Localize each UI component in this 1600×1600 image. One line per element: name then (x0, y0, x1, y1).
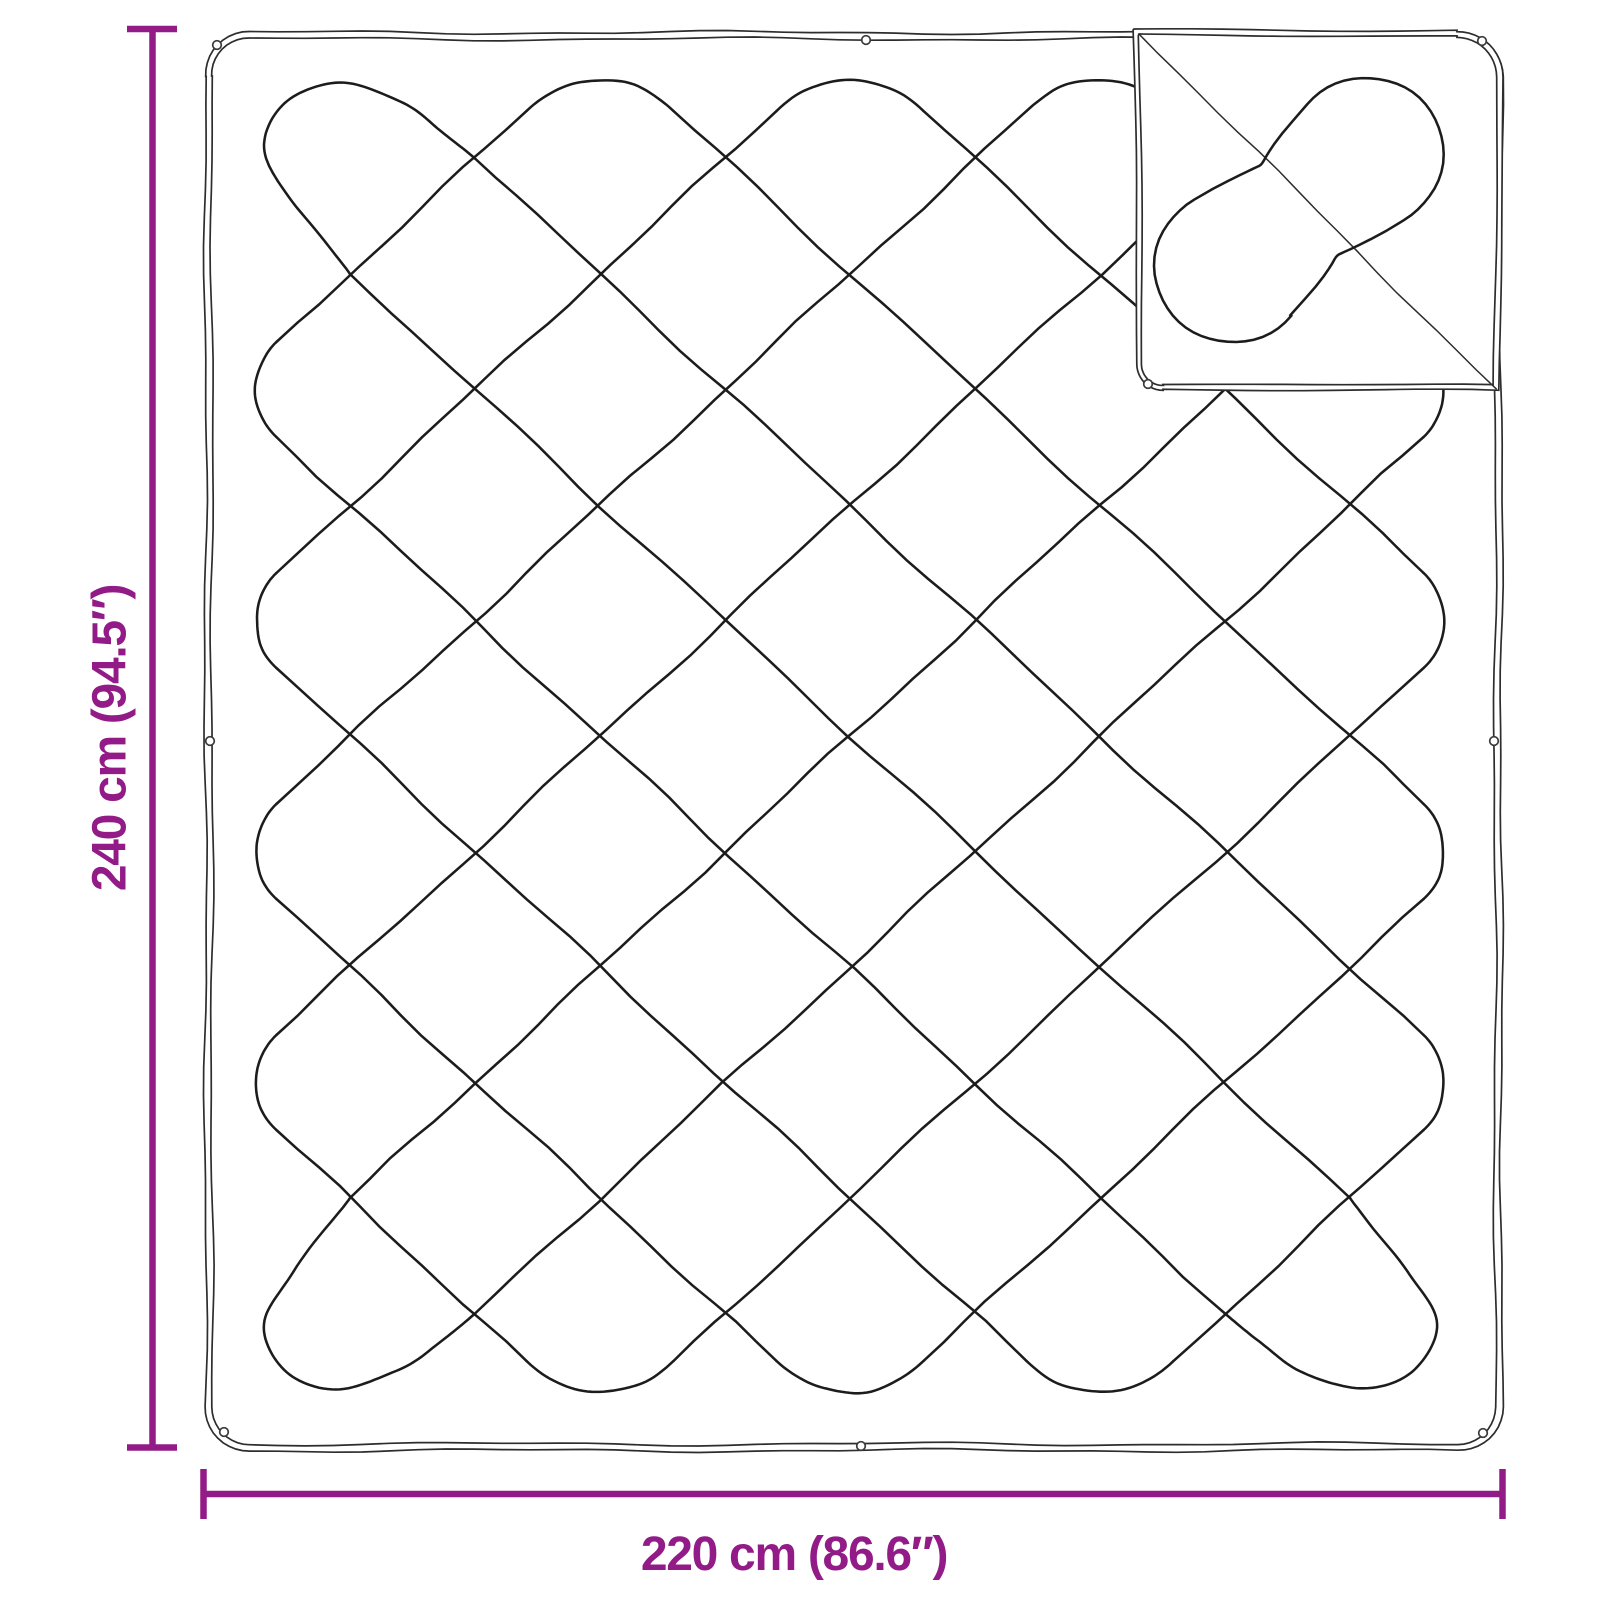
svg-text:240 cm (94.5″): 240 cm (94.5″) (84, 585, 137, 891)
svg-text:220 cm (86.6″): 220 cm (86.6″) (641, 1528, 947, 1581)
